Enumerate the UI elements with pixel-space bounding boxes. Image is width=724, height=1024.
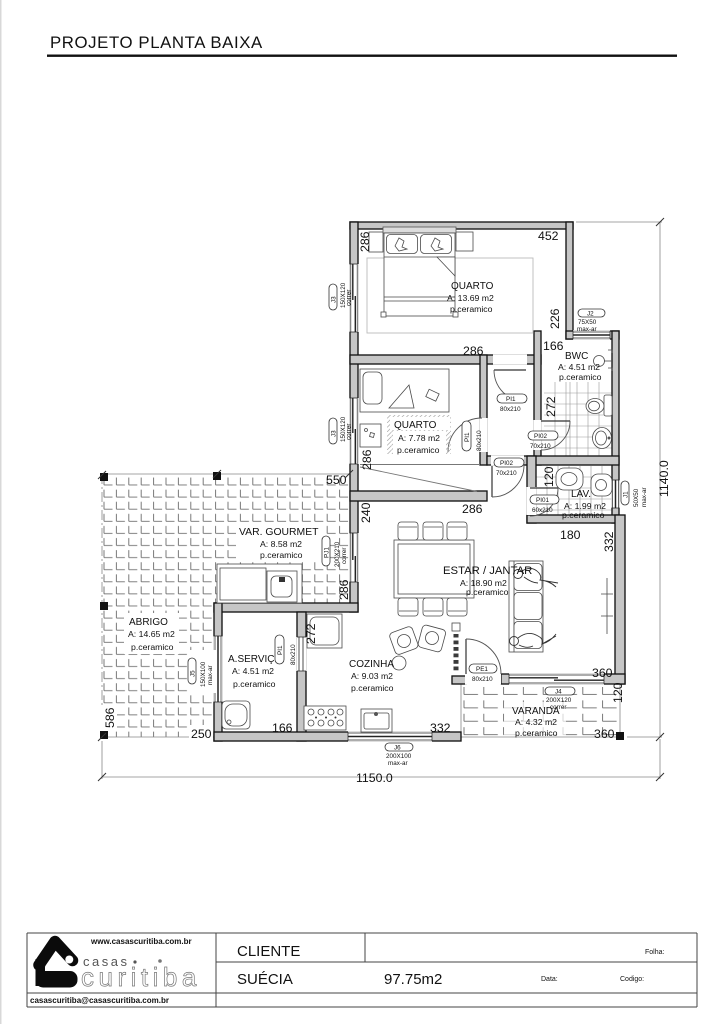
svg-text:97.75m2: 97.75m2 [384,971,442,988]
svg-text:J4: J4 [555,689,562,696]
svg-text:PI1: PI1 [464,432,471,442]
svg-text:200X100: 200X100 [386,753,412,760]
svg-text:A.SERVIÇO: A.SERVIÇO [228,654,282,665]
svg-text:70x210: 70x210 [530,443,551,450]
svg-text:p.ceramico: p.ceramico [515,728,558,738]
svg-text:p.ceramico: p.ceramico [260,550,303,560]
svg-text:286: 286 [358,231,372,252]
svg-text:p.ceramico: p.ceramico [562,510,605,520]
svg-text:CLIENTE: CLIENTE [237,943,300,960]
svg-text:correr: correr [346,290,353,306]
svg-text:Codigo:: Codigo: [620,976,644,983]
svg-text:240: 240 [359,502,373,523]
svg-text:60x210: 60x210 [532,507,553,514]
svg-text:PE1: PE1 [476,666,488,673]
svg-text:p.ceramico: p.ceramico [131,642,174,652]
svg-text:PROJETO PLANTA BAIXA: PROJETO PLANTA BAIXA [50,33,263,52]
svg-text:curitiba: curitiba [81,962,201,992]
svg-text:200X210: 200X210 [334,541,341,567]
svg-text:1150.0: 1150.0 [356,771,393,785]
svg-text:correr: correr [346,424,353,440]
svg-text:150X100: 150X100 [200,661,207,687]
svg-text:80x210: 80x210 [476,430,483,451]
svg-text:332: 332 [430,721,451,735]
svg-text:J3: J3 [331,296,338,303]
svg-text:360: 360 [594,727,615,741]
svg-text:180: 180 [560,528,581,542]
svg-text:A: 7.78 m2: A: 7.78 m2 [398,433,440,443]
svg-text:A: 4.51 m2: A: 4.51 m2 [558,362,600,372]
svg-text:correr: correr [550,704,566,711]
svg-text:A: 9.03 m2: A: 9.03 m2 [351,671,393,681]
svg-text:max-ar: max-ar [577,326,597,333]
svg-text:200X120: 200X120 [546,697,572,704]
svg-text:286: 286 [462,502,483,516]
svg-text:166: 166 [272,721,293,735]
svg-text:120: 120 [611,682,625,703]
svg-text:p.ceramico: p.ceramico [397,445,440,455]
svg-text:J3: J3 [331,430,338,437]
svg-text:LAV.: LAV. [571,489,591,500]
svg-text:PI1: PI1 [277,645,284,655]
svg-text:p.ceramico: p.ceramico [233,679,276,689]
svg-text:p.ceramico: p.ceramico [450,304,493,314]
svg-text:Folha:: Folha: [645,949,665,956]
svg-text:80x210: 80x210 [500,406,521,413]
svg-text:PI01: PI01 [536,497,549,504]
svg-text:PI02: PI02 [534,433,547,440]
svg-text:max-ar: max-ar [388,760,408,767]
svg-text:casascuritiba@casascuritiba.co: casascuritiba@casascuritiba.com.br [30,996,169,1005]
svg-text:80x210: 80x210 [290,644,297,665]
svg-text:286: 286 [463,344,484,358]
svg-text:www.casascuritiba.com.br: www.casascuritiba.com.br [90,937,192,946]
svg-text:80x210: 80x210 [472,676,493,683]
svg-text:Data:: Data: [541,976,558,983]
svg-text:A: 14.65 m2: A: 14.65 m2 [128,629,175,639]
svg-text:A: 4.32 m2: A: 4.32 m2 [515,717,557,727]
svg-text:ABRIGO: ABRIGO [129,617,168,628]
svg-text:70x210: 70x210 [496,470,517,477]
svg-text:A: 4.51 m2: A: 4.51 m2 [232,666,274,676]
svg-text:272: 272 [544,396,558,417]
svg-text:COZINHA: COZINHA [349,659,394,670]
svg-text:J5: J5 [190,670,197,677]
svg-text:VAR. GOURMET: VAR. GOURMET [239,527,319,538]
svg-text:p.ceramico: p.ceramico [466,587,509,597]
svg-text:p.ceramico: p.ceramico [559,372,602,382]
svg-text:332: 332 [602,531,616,552]
svg-text:452: 452 [538,229,559,243]
svg-text:J1: J1 [623,491,630,498]
svg-text:PJ1: PJ1 [324,547,331,558]
svg-text:286: 286 [360,449,374,470]
svg-text:360: 360 [592,666,613,680]
svg-text:p.ceramico: p.ceramico [351,683,394,693]
svg-text:250: 250 [191,727,212,741]
svg-text:75X50: 75X50 [578,319,597,326]
svg-text:586: 586 [103,707,117,728]
svg-text:correr: correr [341,548,348,564]
svg-text:272: 272 [304,623,318,644]
svg-text:QUARTO: QUARTO [394,420,437,431]
svg-text:A: 13.69 m2: A: 13.69 m2 [447,293,494,303]
svg-text:J2: J2 [587,311,594,318]
svg-text:226: 226 [548,308,562,329]
svg-text:1140.0: 1140.0 [657,460,671,497]
svg-text:120: 120 [542,466,556,487]
svg-text:J6: J6 [394,745,401,752]
svg-text:50X50: 50X50 [633,488,640,507]
svg-text:max-ar: max-ar [641,487,648,507]
svg-text:max-ar: max-ar [207,665,214,685]
svg-text:A: 8.58 m2: A: 8.58 m2 [260,539,302,549]
svg-text:286: 286 [337,579,351,600]
svg-text:550: 550 [326,473,347,487]
svg-text:QUARTO: QUARTO [451,281,494,292]
svg-text:SUÉCIA: SUÉCIA [237,971,293,988]
svg-text:PI02: PI02 [500,460,513,467]
svg-text:PI1: PI1 [506,396,516,403]
svg-text:ESTAR / JANTAR: ESTAR / JANTAR [443,565,532,577]
svg-text:166: 166 [543,339,564,353]
svg-text:BWC: BWC [565,351,588,362]
